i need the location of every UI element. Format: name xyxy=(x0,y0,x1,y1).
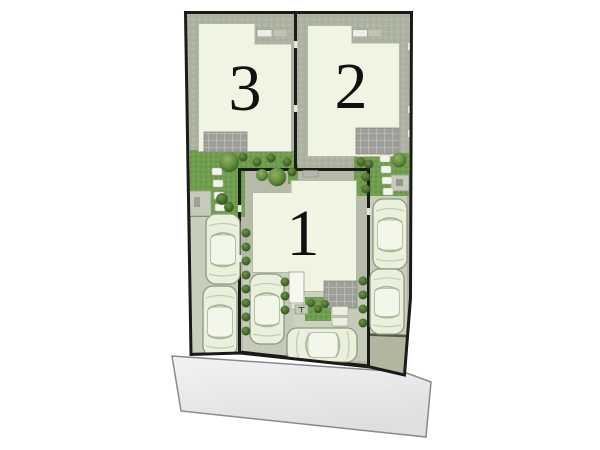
stepping-stone xyxy=(213,180,223,187)
hedge-shrub-icon xyxy=(281,292,290,301)
stepping-stone xyxy=(382,177,392,184)
stepping-stone xyxy=(215,204,225,211)
house-2-entrance-chip xyxy=(369,30,382,36)
lot2-pad-mark xyxy=(396,179,403,186)
car-top-view xyxy=(206,214,240,284)
house-3-entrance-step xyxy=(257,30,272,38)
house-2-terrace-tiles xyxy=(356,128,399,154)
lot-3-number: 3 xyxy=(229,52,262,125)
lot1-step-2 xyxy=(332,318,348,327)
shrub-icon xyxy=(267,154,276,163)
hedge-shrub-icon xyxy=(242,327,251,336)
hedge-shrub-icon xyxy=(242,299,251,308)
hedge-shrub-icon xyxy=(359,305,368,314)
house-2-vent-mark xyxy=(308,153,315,157)
lot-2-number: 2 xyxy=(335,50,368,123)
shrub-icon xyxy=(362,173,371,182)
house-2-entrance-step xyxy=(353,30,368,38)
car-top-view xyxy=(250,274,284,344)
hedge-shrub-icon xyxy=(242,271,251,280)
site-plan-illustration: 3 2 1 xyxy=(0,0,600,450)
car-top-view xyxy=(370,269,404,334)
hedge-shrub-icon xyxy=(359,319,368,328)
car-top-view xyxy=(287,328,357,362)
shrub-icon xyxy=(224,202,234,212)
boundary-tick xyxy=(294,105,298,112)
lot3-pad-mark xyxy=(194,197,200,207)
dimension-chip xyxy=(303,171,318,178)
tree-icon xyxy=(268,168,286,186)
lot-1-number: 1 xyxy=(287,197,320,270)
boundary-tick xyxy=(367,208,371,215)
shrub-icon xyxy=(314,305,322,313)
hedge-shrub-icon xyxy=(242,313,251,322)
shrub-icon xyxy=(321,300,329,308)
tree-icon xyxy=(392,153,406,167)
stepping-stone xyxy=(383,188,393,195)
stepping-stone xyxy=(381,166,391,173)
shrub-icon xyxy=(288,168,297,177)
shrub-icon xyxy=(253,158,262,167)
house-3-entrance-chip xyxy=(274,30,287,36)
stepping-stone xyxy=(212,168,222,175)
shrub-icon xyxy=(365,160,374,169)
stepping-stone xyxy=(380,155,390,162)
hedge-shrub-icon xyxy=(242,257,251,266)
hedge-shrub-icon xyxy=(242,243,251,252)
boundary-tick xyxy=(294,41,298,48)
house-1-entrance-porch xyxy=(289,272,304,303)
car-top-view xyxy=(203,286,237,356)
boundary-tick xyxy=(238,205,242,212)
hedge-shrub-icon xyxy=(359,291,368,300)
hedge-shrub-icon xyxy=(242,285,251,294)
lot1-step-1 xyxy=(332,307,348,316)
shrub-icon xyxy=(307,299,315,307)
tree-icon xyxy=(219,152,239,172)
hedge-shrub-icon xyxy=(359,277,368,286)
hedge-shrub-icon xyxy=(281,306,290,315)
shrub-icon xyxy=(357,158,366,167)
hedge-shrub-icon xyxy=(242,229,251,238)
shrub-icon xyxy=(362,185,371,194)
tree-icon xyxy=(256,169,268,181)
site-plan-page: 3 2 1 xyxy=(0,0,600,450)
shrub-icon xyxy=(239,153,248,162)
car-top-view xyxy=(373,199,407,269)
lawn-texture xyxy=(200,151,294,168)
boundary-tick xyxy=(238,255,242,262)
hedge-shrub-icon xyxy=(281,278,290,287)
house-3-terrace-tiles xyxy=(204,132,247,152)
shrub-icon xyxy=(283,158,292,167)
